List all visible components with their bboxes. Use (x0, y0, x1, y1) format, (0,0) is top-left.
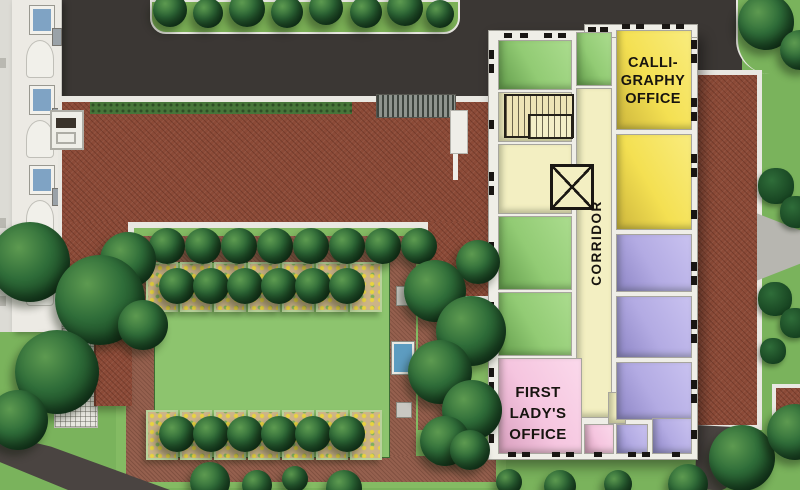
tree (295, 416, 331, 452)
room (616, 424, 648, 454)
window-tick (522, 452, 530, 457)
roof-seam (453, 154, 458, 180)
hedge-bush (760, 338, 786, 364)
window-tick (489, 120, 494, 129)
label-line: LADY'S (494, 403, 582, 424)
room (616, 134, 692, 230)
tree (329, 268, 365, 304)
colonnade-roof (62, 102, 504, 222)
window-tick (504, 33, 512, 38)
window-tick (489, 172, 494, 181)
window-tick (489, 368, 494, 377)
window-tick (676, 24, 684, 29)
window-tick (691, 262, 697, 271)
label-line: OFFICE (494, 424, 582, 445)
room (616, 296, 692, 358)
hedge-bush (780, 196, 800, 228)
window-tick (566, 452, 574, 457)
window-tick (662, 24, 670, 29)
staircase-icon (504, 94, 574, 138)
facade-pilaster (26, 40, 54, 78)
window-tick (691, 430, 697, 439)
window-tick (489, 186, 494, 195)
tree (329, 228, 365, 264)
label-line: GRAPHY (616, 72, 690, 90)
window-small (52, 28, 62, 46)
window-tick (622, 24, 630, 29)
tree (221, 228, 257, 264)
vestibule-step (56, 132, 76, 144)
window-tick (691, 394, 697, 403)
east-wing-floor-plan: CALLI- GRAPHY OFFICE CORRIDOR FIRST LADY… (488, 24, 698, 460)
first-ladys-office-label: FIRST LADY'S OFFICE (494, 382, 582, 445)
window-tick (691, 380, 697, 389)
tree (450, 430, 490, 470)
label-line: CALLI- (616, 54, 690, 72)
hedge-bush (780, 308, 800, 338)
window-tick (691, 276, 697, 285)
site-plan-illustration: CALLI- GRAPHY OFFICE CORRIDOR FIRST LADY… (0, 0, 800, 490)
roof-hedge-strip (90, 102, 352, 114)
east-wing-roof (695, 75, 757, 425)
room (576, 32, 612, 86)
window-tick (520, 33, 528, 38)
vestibule-opening (56, 118, 76, 128)
building-notch (0, 296, 6, 306)
garden-bench (396, 402, 412, 418)
label-line: FIRST (494, 382, 582, 403)
tree (159, 268, 195, 304)
window-tick (558, 33, 566, 38)
roof-chimney (450, 110, 468, 154)
window-tick (691, 154, 697, 163)
tree (329, 416, 365, 452)
tree (257, 228, 293, 264)
room (498, 292, 572, 356)
window-tick (489, 50, 494, 59)
tree (118, 300, 168, 350)
window-tick (642, 452, 650, 457)
tree (295, 268, 331, 304)
window-tick (691, 40, 697, 49)
window-tick (552, 452, 560, 457)
window-tick (508, 452, 516, 457)
window-tick (628, 452, 636, 457)
window-tick (594, 452, 602, 457)
window-tick (672, 452, 680, 457)
calligraphy-office-label: CALLI- GRAPHY OFFICE (616, 54, 690, 108)
window-tick (691, 98, 697, 107)
tree (709, 425, 775, 490)
tree (401, 228, 437, 264)
colonnade-vestibule (50, 110, 84, 150)
room (584, 424, 614, 454)
tree (261, 268, 297, 304)
elevator-x-icon (550, 164, 594, 210)
tree (185, 228, 221, 264)
window-tick (691, 334, 697, 343)
window-tick (691, 210, 697, 219)
window (30, 6, 54, 34)
tree (227, 416, 263, 452)
window-tick (544, 33, 552, 38)
tree (159, 416, 195, 452)
room (498, 216, 572, 290)
tree (426, 0, 454, 28)
window-tick (489, 64, 494, 73)
window-tick (691, 320, 697, 329)
window-tick (636, 24, 644, 29)
tree (544, 470, 576, 490)
window (30, 166, 54, 194)
window-tick (691, 54, 697, 63)
tree (496, 469, 522, 490)
window-tick (691, 168, 697, 177)
room (652, 418, 692, 454)
building-notch (0, 58, 6, 68)
tree (365, 228, 401, 264)
label-line: OFFICE (616, 90, 690, 108)
building-notch (0, 218, 6, 228)
window-tick (588, 27, 596, 32)
exterior-stair-grate (376, 94, 456, 118)
tree (604, 470, 632, 490)
room (498, 40, 572, 90)
room (616, 362, 692, 420)
tree (193, 416, 229, 452)
tree (282, 466, 308, 490)
tree (193, 268, 229, 304)
staircase-inner-flight (528, 114, 573, 140)
tree (293, 228, 329, 264)
window-tick (600, 27, 608, 32)
room (616, 234, 692, 292)
corridor-label: CORRIDOR (589, 183, 605, 303)
window-tick (691, 112, 697, 121)
tree (261, 416, 297, 452)
tree (227, 268, 263, 304)
